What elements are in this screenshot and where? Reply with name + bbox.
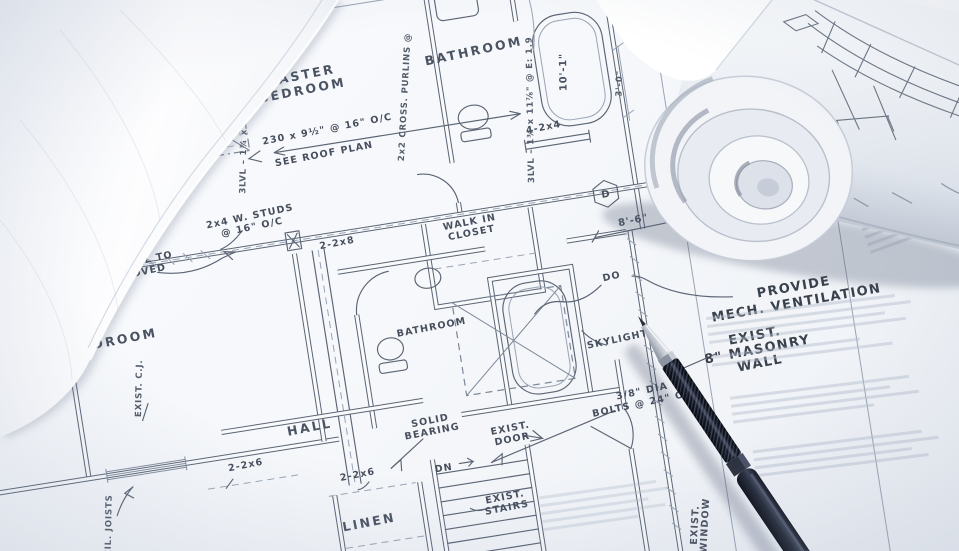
scene-svg: MASTERBEDROOMBATHROOMBEDROOMBATHROOMHALL… [0, 0, 959, 551]
blueprint-photo: MASTERBEDROOMBATHROOMBEDROOMBATHROOMHALL… [0, 0, 959, 551]
vignette [0, 0, 959, 551]
